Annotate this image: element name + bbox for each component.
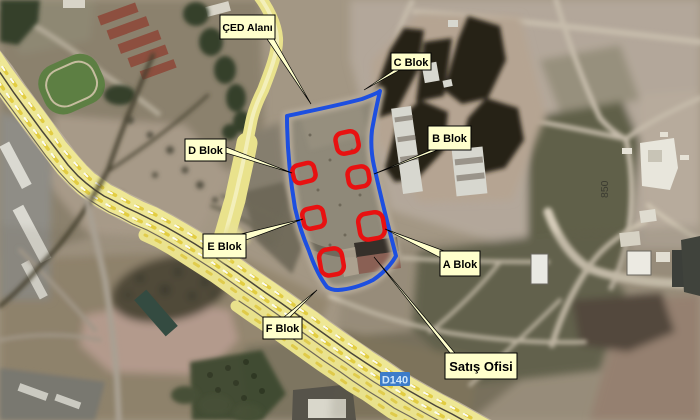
svg-text:D140: D140 <box>382 375 408 387</box>
svg-text:A Blok: A Blok <box>443 259 478 271</box>
svg-text:850: 850 <box>599 180 611 198</box>
svg-text:Satış Ofisi: Satış Ofisi <box>449 359 513 374</box>
svg-text:E Blok: E Blok <box>207 241 242 253</box>
svg-text:C Blok: C Blok <box>394 57 430 69</box>
svg-text:ÇED Alanı: ÇED Alanı <box>222 22 272 34</box>
svg-text:B Blok: B Blok <box>432 133 468 145</box>
svg-text:F Blok: F Blok <box>266 323 300 335</box>
svg-text:D Blok: D Blok <box>188 145 224 157</box>
